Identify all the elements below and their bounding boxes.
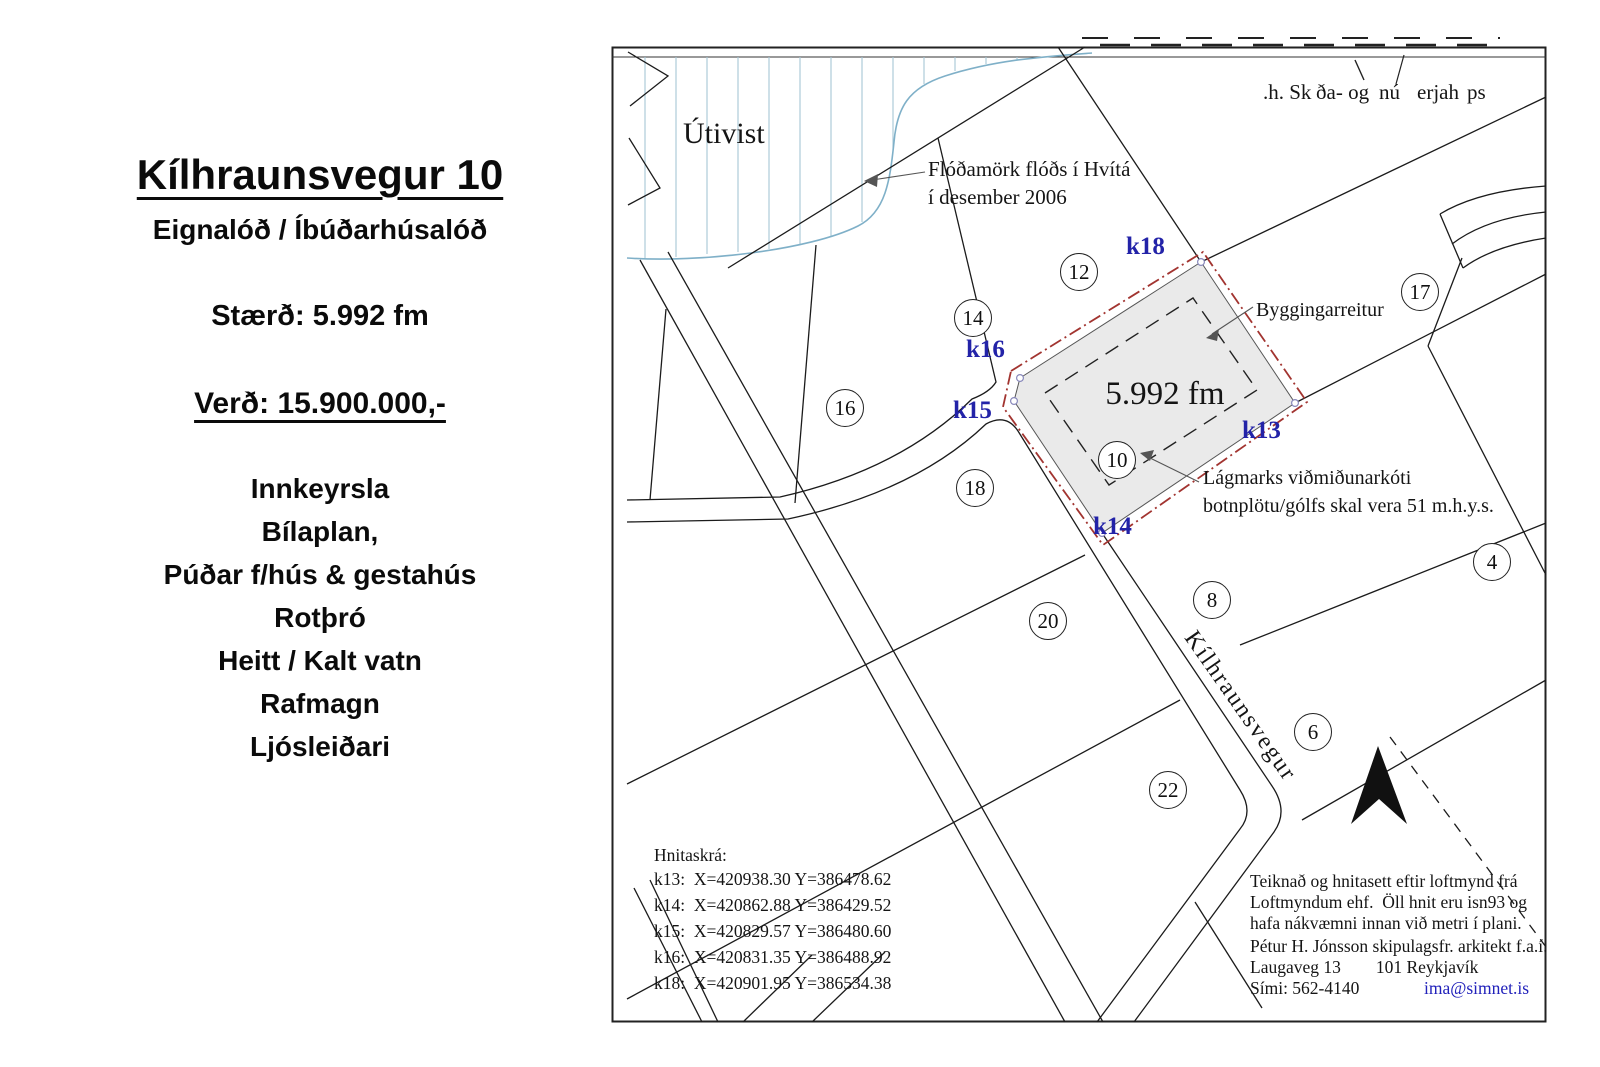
building-area-label: Byggingarreitur [1256, 299, 1384, 322]
credits-line: Loftmyndum ehf. Öll hnit eru isn93 og [1250, 892, 1527, 913]
coords-entry: k18: X=420901.95 Y=386534.38 [654, 973, 891, 994]
lot-number: 17 [1401, 273, 1439, 311]
credits-line: Pétur H. Jónsson skipulagsfr. arkitekt f… [1250, 936, 1547, 957]
flood-note-line2: í desember 2006 [928, 185, 1067, 210]
credits-email-link[interactable]: ima@simnet.is [1424, 978, 1529, 999]
header-fragment: erjah [1417, 80, 1459, 105]
lot-number: 14 [954, 299, 992, 337]
k-point-label: k13 [1242, 417, 1281, 445]
header-fragment: .h. Sk [1263, 80, 1311, 105]
coords-entry: k13: X=420938.30 Y=386478.62 [654, 869, 891, 890]
header-fragment: nú [1379, 80, 1400, 105]
area-label-utivist: Útivist [683, 117, 765, 151]
lot-number: 6 [1294, 713, 1332, 751]
lot-number: 18 [956, 469, 994, 507]
credits-line: Laugaveg 13 101 Reykjavík [1250, 957, 1478, 978]
lot-number: 16 [826, 389, 864, 427]
header-fragment: ða- og [1316, 80, 1369, 105]
coords-entry: k14: X=420862.88 Y=386429.52 [654, 895, 891, 916]
coords-entry: k16: X=420831.35 Y=386488.92 [654, 947, 891, 968]
min-level-line2: botnplötu/gólfs skal vera 51 m.h.y.s. [1203, 495, 1494, 518]
credits-phone: Sími: 562-4140 [1250, 978, 1359, 999]
lot-number: 8 [1193, 581, 1231, 619]
k-point-label: k15 [953, 397, 992, 425]
min-level-line1: Lágmarks viðmiðunarkóti [1203, 467, 1411, 490]
header-fragment: ps [1467, 80, 1486, 105]
north-arrow-icon [1351, 746, 1407, 824]
lot-number: 10 [1098, 441, 1136, 479]
credits-line: hafa nákvæmni innan við metri í plani. [1250, 913, 1522, 934]
lot-number: 12 [1060, 253, 1098, 291]
coords-title: Hnitaskrá: [654, 845, 727, 866]
real-estate-flyer: Kílhraunsvegur 10 Eignalóð / Íbúðarhúsal… [0, 0, 1600, 1067]
coords-entry: k15: X=420829.57 Y=386480.60 [654, 921, 891, 942]
lot-number: 4 [1473, 543, 1511, 581]
plot-size-label: 5.992 fm [1085, 376, 1245, 413]
k-point-label: k16 [966, 336, 1005, 364]
credits-line: Teiknað og hnitasett eftir loftmynd frá [1250, 871, 1518, 892]
obscured-header-marks [1082, 38, 1505, 84]
flood-note-line1: Flóðamörk flóðs í Hvítá [928, 157, 1130, 182]
lot-number: 22 [1149, 771, 1187, 809]
lot-number: 20 [1029, 602, 1067, 640]
k-point-label: k14 [1093, 513, 1132, 541]
k-point-label: k18 [1126, 233, 1165, 261]
